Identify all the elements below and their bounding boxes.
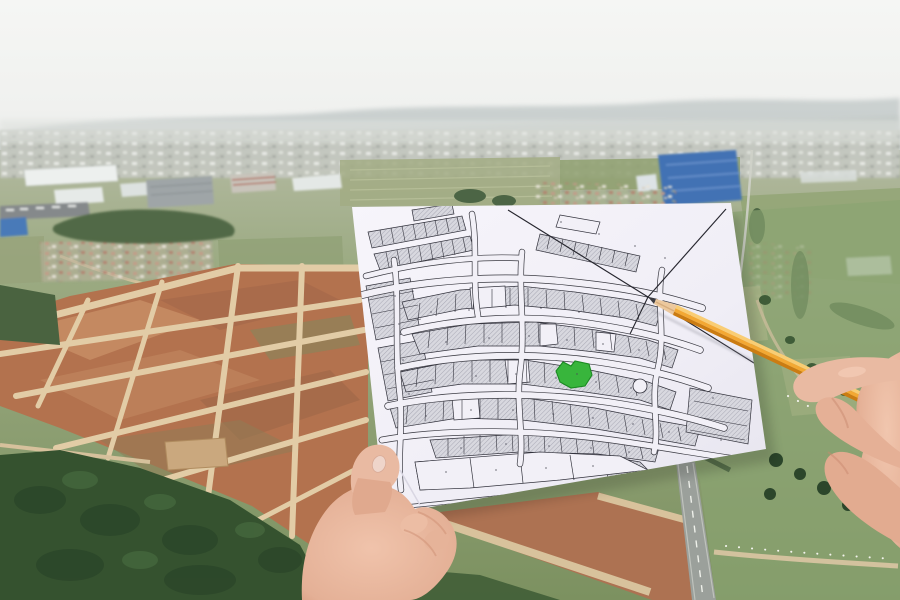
field-strip bbox=[340, 157, 560, 206]
canopy bbox=[144, 494, 176, 510]
canopy bbox=[36, 549, 104, 581]
warehouse bbox=[54, 187, 104, 205]
canopy bbox=[80, 504, 140, 536]
canopy bbox=[258, 547, 302, 573]
trees bbox=[454, 189, 486, 203]
white-lot bbox=[596, 332, 616, 352]
trees bbox=[492, 195, 516, 207]
tree bbox=[785, 336, 795, 344]
canopy bbox=[235, 522, 265, 538]
pine-tree bbox=[794, 468, 806, 480]
canopy bbox=[14, 486, 66, 514]
aerial-photo-scene bbox=[0, 0, 900, 600]
greenhouses bbox=[800, 170, 857, 183]
haze-strip bbox=[0, 120, 900, 142]
white-lot bbox=[540, 324, 558, 346]
blue-warehouse-left bbox=[0, 217, 28, 237]
scene-canvas bbox=[0, 0, 900, 600]
street-fill bbox=[519, 252, 522, 464]
canopy bbox=[122, 551, 158, 569]
excavated-pit bbox=[165, 438, 228, 470]
cul-de-sac bbox=[633, 379, 647, 393]
canopy bbox=[164, 565, 236, 595]
canopy bbox=[62, 471, 98, 489]
canopy bbox=[162, 525, 218, 555]
tree bbox=[759, 295, 771, 305]
field-left bbox=[0, 236, 44, 284]
left-thumb-base bbox=[352, 478, 392, 515]
pine-tree bbox=[764, 488, 776, 500]
